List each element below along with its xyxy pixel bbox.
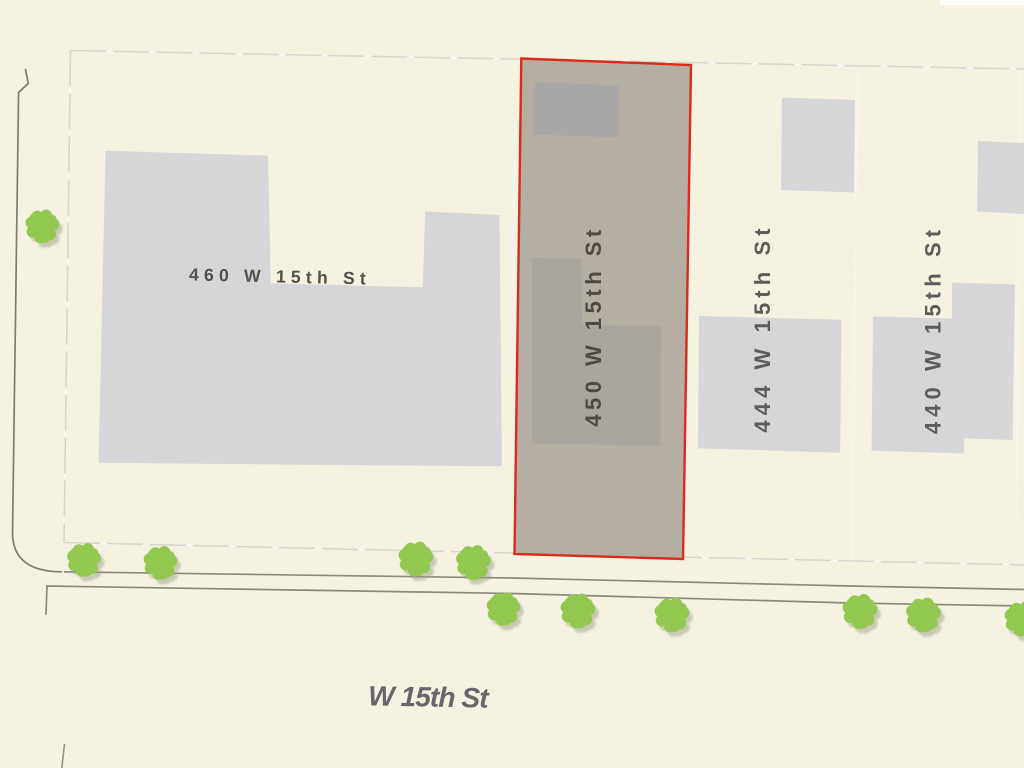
svg-text:W 15th St: W 15th St	[368, 680, 491, 713]
svg-text:444 W 15th St: 444 W 15th St	[750, 223, 775, 432]
svg-text:450 W 15th St: 450 W 15th St	[581, 225, 606, 427]
svg-text:460 W 15th St: 460 W 15th St	[189, 264, 371, 288]
svg-text:440 W 15th St: 440 W 15th St	[921, 225, 946, 434]
